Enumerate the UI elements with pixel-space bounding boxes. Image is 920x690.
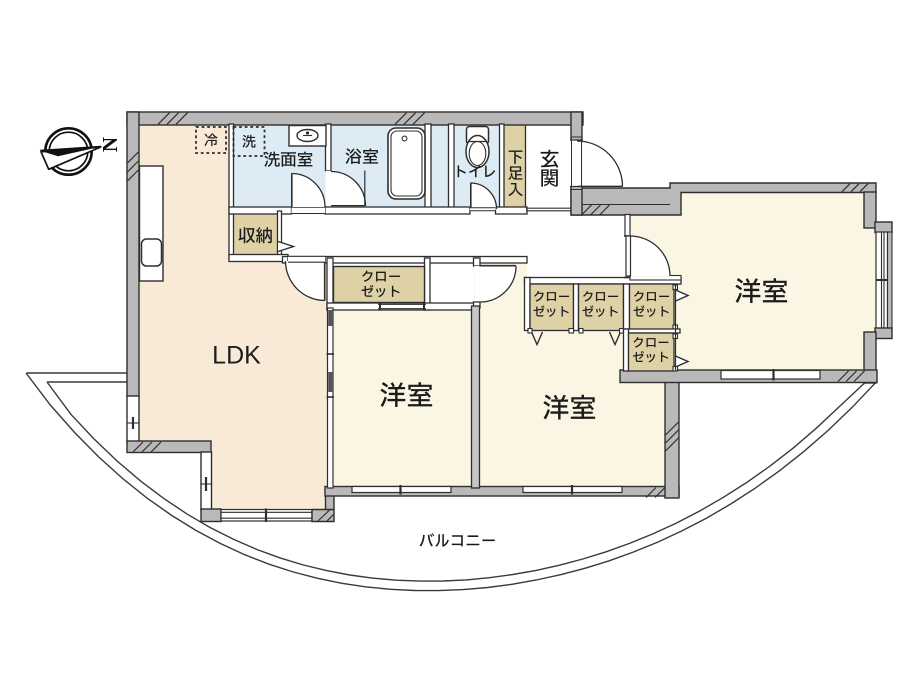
svg-text:LDK: LDK bbox=[212, 342, 261, 370]
svg-text:N: N bbox=[98, 137, 122, 152]
